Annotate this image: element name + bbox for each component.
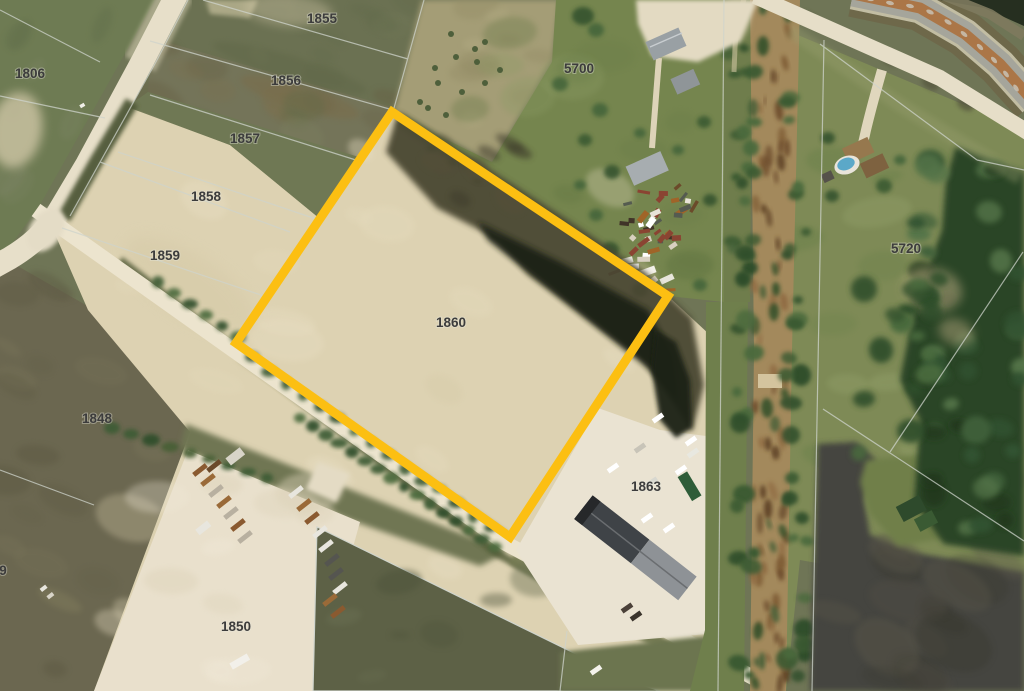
svg-text:1858: 1858 [191, 189, 222, 204]
svg-text:1860: 1860 [436, 315, 466, 330]
svg-text:9: 9 [0, 563, 7, 578]
svg-text:1856: 1856 [271, 73, 302, 88]
svg-text:5700: 5700 [564, 61, 594, 76]
svg-text:1806: 1806 [15, 66, 46, 81]
svg-text:1848: 1848 [82, 411, 113, 426]
svg-text:1855: 1855 [307, 11, 338, 26]
svg-text:1859: 1859 [150, 248, 180, 263]
svg-text:5720: 5720 [891, 241, 921, 256]
svg-text:1850: 1850 [221, 619, 251, 634]
svg-text:1857: 1857 [230, 131, 260, 146]
svg-text:1863: 1863 [631, 479, 662, 494]
